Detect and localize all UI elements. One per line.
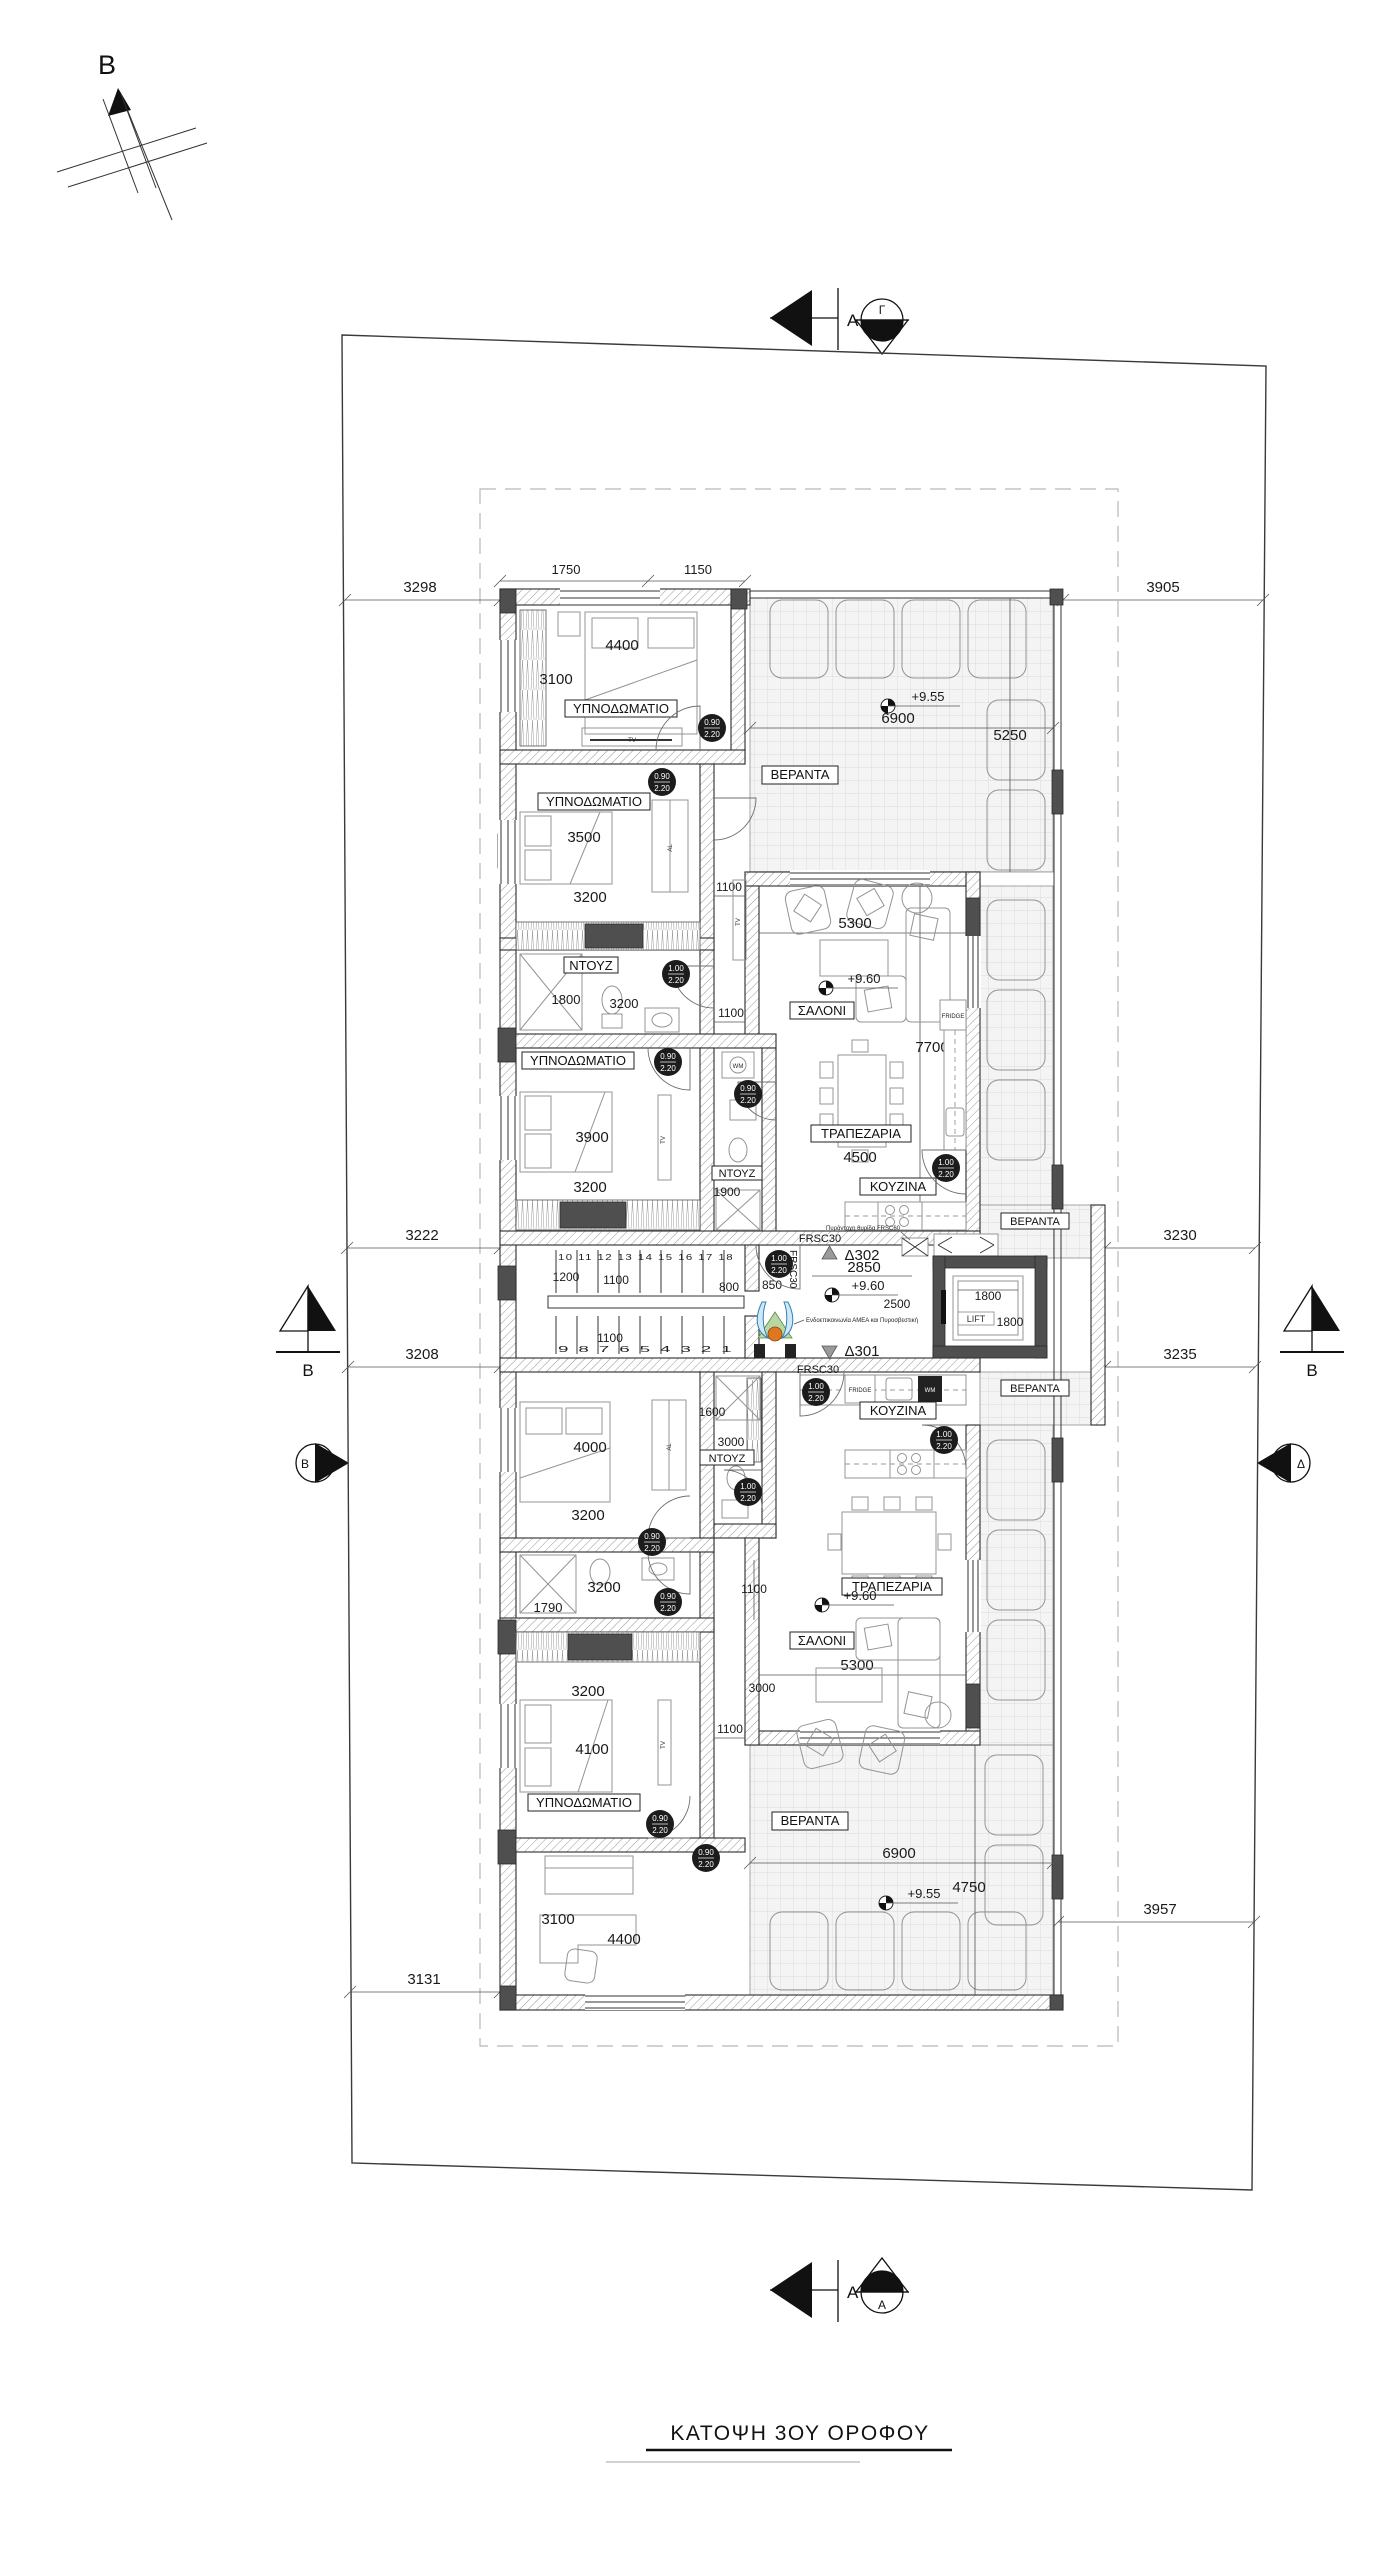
wardrobes: [516, 610, 761, 1662]
level-living-upper: +9.60: [848, 971, 881, 986]
door-badge: 1.002.20: [932, 1154, 960, 1182]
armchair: [784, 884, 832, 935]
door-badge: 0.902.20: [692, 1844, 720, 1872]
dim-stair-1100a: 1100: [603, 1273, 629, 1287]
section-marker-b-left: B: [276, 1286, 340, 1380]
door-badge: 0.902.20: [654, 1588, 682, 1616]
svg-text:1.00: 1.00: [771, 1254, 787, 1263]
door-badges: 0.902.20 0.902.20 1.002.20 0.902.20 0.90…: [638, 714, 960, 1872]
dim-bed3-h: 3200: [573, 1179, 606, 1196]
dim-stair-850: 850: [762, 1278, 782, 1292]
level-core: +9.60: [852, 1278, 885, 1293]
svg-text:1.00: 1.00: [740, 1482, 756, 1491]
elevation-label-gamma: Γ: [879, 303, 886, 317]
section-label-b-left: B: [302, 1361, 313, 1380]
window: [498, 1704, 518, 1768]
dim-liv-w: 5300: [838, 915, 871, 932]
section-marker-a-bottom: A: [770, 2260, 859, 2322]
dim-office-h: 3100: [541, 1911, 574, 1928]
svg-text:Πυράντοχη θυρίδα FRSC60: Πυράντοχη θυρίδα FRSC60: [826, 1225, 901, 1232]
door-badge: 0.902.20: [646, 1810, 674, 1838]
door-badge: 1.002.20: [765, 1250, 793, 1278]
room-label-veranda-bottom: ΒΕΡΑΝΤΑ: [772, 1812, 848, 1830]
dim-bed1-w: 4400: [605, 637, 638, 654]
dim-office-w: 4400: [607, 1931, 640, 1948]
wheelchair-amea-icon: [754, 1302, 796, 1358]
bedroom-1: TV 4400 3100 ΥΠΝΟΔΩΜΑΤΙΟ: [539, 612, 700, 750]
svg-text:1.00: 1.00: [808, 1382, 824, 1391]
door-badge: 0.902.20: [734, 1080, 762, 1108]
svg-text:ΝΤΟΥΖ: ΝΤΟΥΖ: [719, 1168, 756, 1180]
room-label-veranda-mid-upper: ΒΕΡΑΝΤΑ: [1001, 1213, 1069, 1229]
floor-plan-drawing: B A Γ A A B: [0, 0, 1399, 2560]
elevation-label-b: B: [301, 1457, 309, 1471]
door-badge: 0.902.20: [698, 714, 726, 742]
dim-veranda-w: 6900: [881, 710, 914, 727]
room-label-bedroom-lower2: ΥΠΝΟΔΩΜΑΤΙΟ: [528, 1794, 640, 1811]
dim-e-upper: 3230: [1163, 1227, 1196, 1244]
title-text: ΚΑΤΟΨΗ 3ΟΥ ΟΡΟΦΟΥ: [670, 2422, 929, 2445]
door-badge: 1.002.20: [930, 1426, 958, 1454]
window: [498, 1096, 518, 1160]
svg-text:0.90: 0.90: [660, 1592, 676, 1601]
svg-text:0.90: 0.90: [652, 1814, 668, 1823]
dining-table: [820, 1040, 903, 1162]
fridge-label: FRIDGE: [942, 1014, 965, 1020]
dim-bedl1-w: 4000: [573, 1439, 606, 1456]
door-badge: 1.002.20: [802, 1378, 830, 1406]
room-label-kitchen-upper: ΚΟΥΖΙΝΑ: [860, 1178, 936, 1195]
room-label-living-upper: ΣΑΛΟΝΙ: [790, 1002, 854, 1019]
lift-label: LIFT: [958, 1312, 994, 1325]
wm-label: WM: [925, 1388, 936, 1394]
tv-label: TV: [661, 1741, 667, 1749]
dim-hall: 1100: [718, 1006, 744, 1020]
window: [498, 1408, 518, 1472]
dim-core-2850: 2850: [847, 1259, 880, 1276]
svg-text:Ενδοεπικοινωνία ΑΜΕΑ και Πυροσ: Ενδοεπικοινωνία ΑΜΕΑ και Πυροσβεστική: [806, 1317, 918, 1324]
svg-text:0.90: 0.90: [740, 1084, 756, 1093]
svg-text:ΒΕΡΑΝΤΑ: ΒΕΡΑΝΤΑ: [771, 767, 830, 782]
svg-text:1.00: 1.00: [668, 964, 684, 973]
tv-label: TV: [736, 918, 742, 926]
office-room: 3100 4400: [540, 1856, 641, 1984]
svg-text:2.20: 2.20: [771, 1266, 787, 1275]
room-label-bedroom3: ΥΠΝΟΔΩΜΑΤΙΟ: [522, 1052, 634, 1069]
section-label-b-right: B: [1306, 1361, 1317, 1380]
svg-text:1.00: 1.00: [936, 1430, 952, 1439]
dim-lift-w: 1800: [975, 1289, 1002, 1303]
svg-text:ΒΕΡΑΝΤΑ: ΒΕΡΑΝΤΑ: [1010, 1383, 1060, 1395]
dim-bed2-w: 3500: [567, 829, 600, 846]
toilet: [729, 1138, 747, 1162]
svg-text:ΥΠΝΟΔΩΜΑΤΙΟ: ΥΠΝΟΔΩΜΑΤΙΟ: [546, 794, 642, 809]
dim-bath-w: 3200: [587, 1579, 620, 1596]
svg-text:2.20: 2.20: [660, 1604, 676, 1613]
dim-bedl1-h: 3200: [571, 1507, 604, 1524]
frsc30-bottom: FRSC30: [797, 1364, 839, 1376]
north-arrow: B: [57, 50, 207, 220]
dim-bedl2-side: 1100: [717, 1722, 743, 1736]
dim-shl-w: 1600: [699, 1405, 726, 1419]
dim-stair-800: 800: [719, 1280, 739, 1294]
svg-text:ΝΤΟΥΖ: ΝΤΟΥΖ: [709, 1453, 746, 1465]
stair-handrail: [548, 1296, 744, 1308]
dim-livl-3000: 3000: [749, 1681, 776, 1695]
svg-text:2.20: 2.20: [938, 1170, 954, 1179]
dim-nw: 3298: [403, 579, 436, 596]
bed: [520, 812, 612, 884]
toilet-tank: [602, 1014, 622, 1028]
stair-numbers-down: 9 8 7 6 5 4 3 2 1: [558, 1345, 734, 1354]
level-veranda-top: +9.55: [912, 689, 945, 704]
svg-text:LIFT: LIFT: [967, 1314, 986, 1324]
room-label-shower-lower: ΝΤΟΥΖ: [700, 1450, 754, 1465]
fridge-label: FRIDGE: [849, 1388, 872, 1394]
window: [965, 1560, 981, 1632]
window: [560, 588, 660, 606]
level-living-lower: +9.60: [844, 1588, 877, 1603]
dim-bedl2-t: 3200: [571, 1683, 604, 1700]
amea-note: Ενδοεπικοινωνία ΑΜΕΑ και Πυροσβεστική: [794, 1317, 918, 1324]
svg-text:2.20: 2.20: [644, 1544, 660, 1553]
dim-se: 3957: [1143, 1901, 1176, 1918]
tv-label: TV: [628, 738, 636, 744]
svg-text:2.20: 2.20: [704, 730, 720, 739]
dim-e-lower: 3235: [1163, 1346, 1196, 1363]
desk-chair: [564, 1948, 598, 1984]
elevation-marker-a: A: [855, 2258, 909, 2313]
dim-1750: 1750: [552, 562, 581, 577]
sink: [645, 1008, 679, 1032]
svg-text:2.20: 2.20: [668, 976, 684, 985]
svg-text:0.90: 0.90: [654, 772, 670, 781]
stair-numbers-up: 10 11 12 13 14 15 16 17 18: [558, 1253, 734, 1262]
svg-text:0.90: 0.90: [698, 1848, 714, 1857]
lift-door: [941, 1290, 946, 1324]
window: [498, 820, 518, 884]
frsc30-top: FRSC30: [799, 1233, 841, 1245]
dim-ne: 3905: [1146, 579, 1179, 596]
door-badge: 1.002.20: [662, 960, 690, 988]
sink: [642, 1558, 674, 1580]
room-label-shower1: ΝΤΟΥΖ: [564, 957, 618, 973]
svg-text:ΚΟΥΖΙΝΑ: ΚΟΥΖΙΝΑ: [870, 1179, 927, 1194]
dim-bedl2-w: 4100: [575, 1741, 608, 1758]
svg-text:2.20: 2.20: [740, 1096, 756, 1105]
svg-text:ΣΑΛΟΝΙ: ΣΑΛΟΝΙ: [798, 1633, 846, 1648]
dim-w-lower: 3208: [405, 1346, 438, 1363]
svg-text:2.20: 2.20: [654, 784, 670, 793]
dim-bed2-h: 3200: [573, 889, 606, 906]
floor-plan-sheet: B A Γ A A B: [0, 0, 1399, 2560]
dim-veranda-bottom-w: 6900: [882, 1845, 915, 1862]
window: [965, 936, 981, 1008]
door-badge: 1.002.20: [734, 1478, 762, 1506]
svg-text:2.20: 2.20: [740, 1494, 756, 1503]
section-marker-a-top: A: [770, 288, 859, 350]
svg-text:ΚΟΥΖΙΝΑ: ΚΟΥΖΙΝΑ: [870, 1403, 927, 1418]
tv-label: TV: [661, 1136, 667, 1144]
level-veranda-bottom: +9.55: [908, 1886, 941, 1901]
dim-liv-1100: 1100: [741, 1582, 767, 1596]
door-badge: 0.902.20: [648, 768, 676, 796]
top-dimensions: 1750 1150: [494, 562, 751, 587]
svg-text:ΒΕΡΑΝΤΑ: ΒΕΡΑΝΤΑ: [1010, 1216, 1060, 1228]
svg-text:ΥΠΝΟΔΩΜΑΤΙΟ: ΥΠΝΟΔΩΜΑΤΙΟ: [536, 1795, 632, 1810]
svg-text:ΤΡΑΠΕΖΑΡΙΑ: ΤΡΑΠΕΖΑΡΙΑ: [821, 1126, 901, 1141]
room-label-dining-upper: ΤΡΑΠΕΖΑΡΙΑ: [811, 1125, 911, 1142]
elevation-marker-delta: Δ: [1257, 1443, 1310, 1483]
dim-w-upper: 3222: [405, 1227, 438, 1244]
marker-d301: Δ301: [822, 1343, 880, 1360]
dim-sh1-w: 1800: [552, 992, 581, 1007]
dim-bed1-h: 3100: [539, 671, 572, 688]
wm-label: WM: [733, 1064, 744, 1070]
dim-stair-1100b: 1100: [597, 1331, 623, 1345]
svg-text:0.90: 0.90: [704, 718, 720, 727]
svg-text:2.20: 2.20: [652, 1826, 668, 1835]
door-badge: 0.902.20: [638, 1528, 666, 1556]
bedroom-lower-1: 4000 3200 AL: [520, 1400, 690, 1538]
dim-veranda-bottom-d: 4750: [952, 1879, 985, 1896]
svg-text:2.20: 2.20: [808, 1394, 824, 1403]
room-label-living-lower: ΣΑΛΟΝΙ: [790, 1632, 854, 1649]
svg-text:ΥΠΝΟΔΩΜΑΤΙΟ: ΥΠΝΟΔΩΜΑΤΙΟ: [573, 701, 669, 716]
room-label-kitchen-lower: ΚΟΥΖΙΝΑ: [860, 1402, 936, 1419]
dim-shl-h: 3000: [718, 1435, 745, 1449]
level-marker-living-upper: +9.60: [819, 971, 898, 995]
svg-text:2.20: 2.20: [936, 1442, 952, 1451]
svg-text:ΣΑΛΟΝΙ: ΣΑΛΟΝΙ: [798, 1003, 846, 1018]
room-label-veranda-top: ΒΕΡΑΝΤΑ: [762, 766, 838, 784]
dim-1150: 1150: [684, 562, 712, 577]
room-label-bedroom2: ΥΠΝΟΔΩΜΑΤΙΟ: [538, 793, 650, 810]
dim-dining: 4500: [843, 1149, 876, 1166]
svg-text:0.90: 0.90: [660, 1052, 676, 1061]
window: [585, 1993, 685, 2010]
dim-sh1-h: 3200: [610, 996, 639, 1011]
dining-table: [828, 1497, 951, 1589]
svg-text:2.20: 2.20: [660, 1064, 676, 1073]
bench-sofa: [545, 1856, 633, 1894]
sliding-door: [790, 870, 930, 886]
window: [498, 640, 518, 712]
dim-sh2: 1900: [714, 1185, 741, 1199]
dim-lift-d: 1800: [997, 1315, 1024, 1329]
closet-al-label: AL: [668, 844, 674, 852]
elevation-marker-b-left: B: [296, 1443, 349, 1483]
room-label-bedroom1: ΥΠΝΟΔΩΜΑΤΙΟ: [565, 700, 677, 717]
dim-stair-1200: 1200: [553, 1270, 580, 1284]
dining-upper: ΤΡΑΠΕΖΑΡΙΑ 4500: [811, 1040, 911, 1166]
side-table: [925, 1702, 951, 1728]
dim-sw: 3131: [407, 1971, 440, 1988]
kitchen-upper: FRIDGE ΚΟΥΖΙΝΑ: [845, 1000, 966, 1230]
svg-text:Δ301: Δ301: [844, 1343, 879, 1360]
dim-veranda-d: 5250: [993, 727, 1026, 744]
svg-text:1.00: 1.00: [938, 1158, 954, 1167]
room-label-shower2: ΝΤΟΥΖ: [712, 1166, 762, 1180]
dim-bed2-side: 1100: [716, 880, 742, 894]
section-marker-b-right: B: [1280, 1286, 1344, 1380]
dim-bed3-w: 3900: [575, 1129, 608, 1146]
svg-text:ΥΠΝΟΔΩΜΑΤΙΟ: ΥΠΝΟΔΩΜΑΤΙΟ: [530, 1053, 626, 1068]
svg-text:ΒΕΡΑΝΤΑ: ΒΕΡΑΝΤΑ: [781, 1813, 840, 1828]
elevation-label-a: A: [878, 2298, 886, 2312]
lift: 1800 LIFT 1800: [933, 1256, 1047, 1358]
elevation-label-delta: Δ: [1297, 1457, 1305, 1471]
drawing-title: ΚΑΤΟΨΗ 3ΟΥ ΟΡΟΦΟΥ: [606, 2422, 952, 2462]
dim-bath-h: 1790: [534, 1600, 563, 1615]
north-label: B: [98, 50, 116, 80]
dim-core-2500: 2500: [884, 1297, 911, 1311]
core: 10 11 12 13 14 15 16 17 18 9 8 7 6 5 4 3…: [548, 1225, 1047, 1376]
closet-al-label: AL: [667, 1443, 673, 1451]
svg-text:2.20: 2.20: [698, 1860, 714, 1869]
door-badge: 0.902.20: [654, 1048, 682, 1076]
svg-text:0.90: 0.90: [644, 1532, 660, 1541]
elevation-marker-gamma: Γ: [855, 299, 909, 354]
svg-text:ΝΤΟΥΖ: ΝΤΟΥΖ: [569, 958, 612, 973]
room-label-veranda-mid-lower: ΒΕΡΑΝΤΑ: [1001, 1380, 1069, 1396]
